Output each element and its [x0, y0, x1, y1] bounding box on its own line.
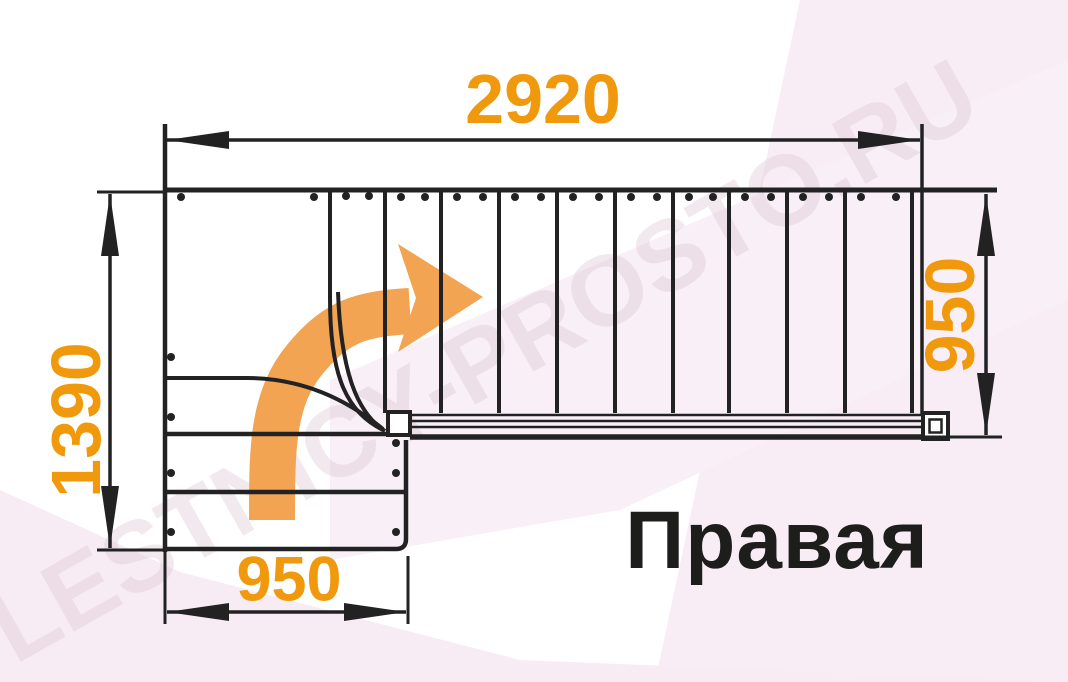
dimension-label-bottom: 950: [236, 549, 341, 612]
newel-post-right: [923, 413, 948, 439]
dimension-label-left: 1390: [41, 342, 111, 498]
plan-title: Правая: [625, 500, 928, 582]
stair-plan-diagram: LESTNICY-PROSTO.RU: [0, 0, 1068, 682]
dimension-label-top: 2920: [465, 64, 621, 134]
dimension-label-right: 950: [915, 257, 985, 374]
newel-post-left: [388, 412, 410, 435]
